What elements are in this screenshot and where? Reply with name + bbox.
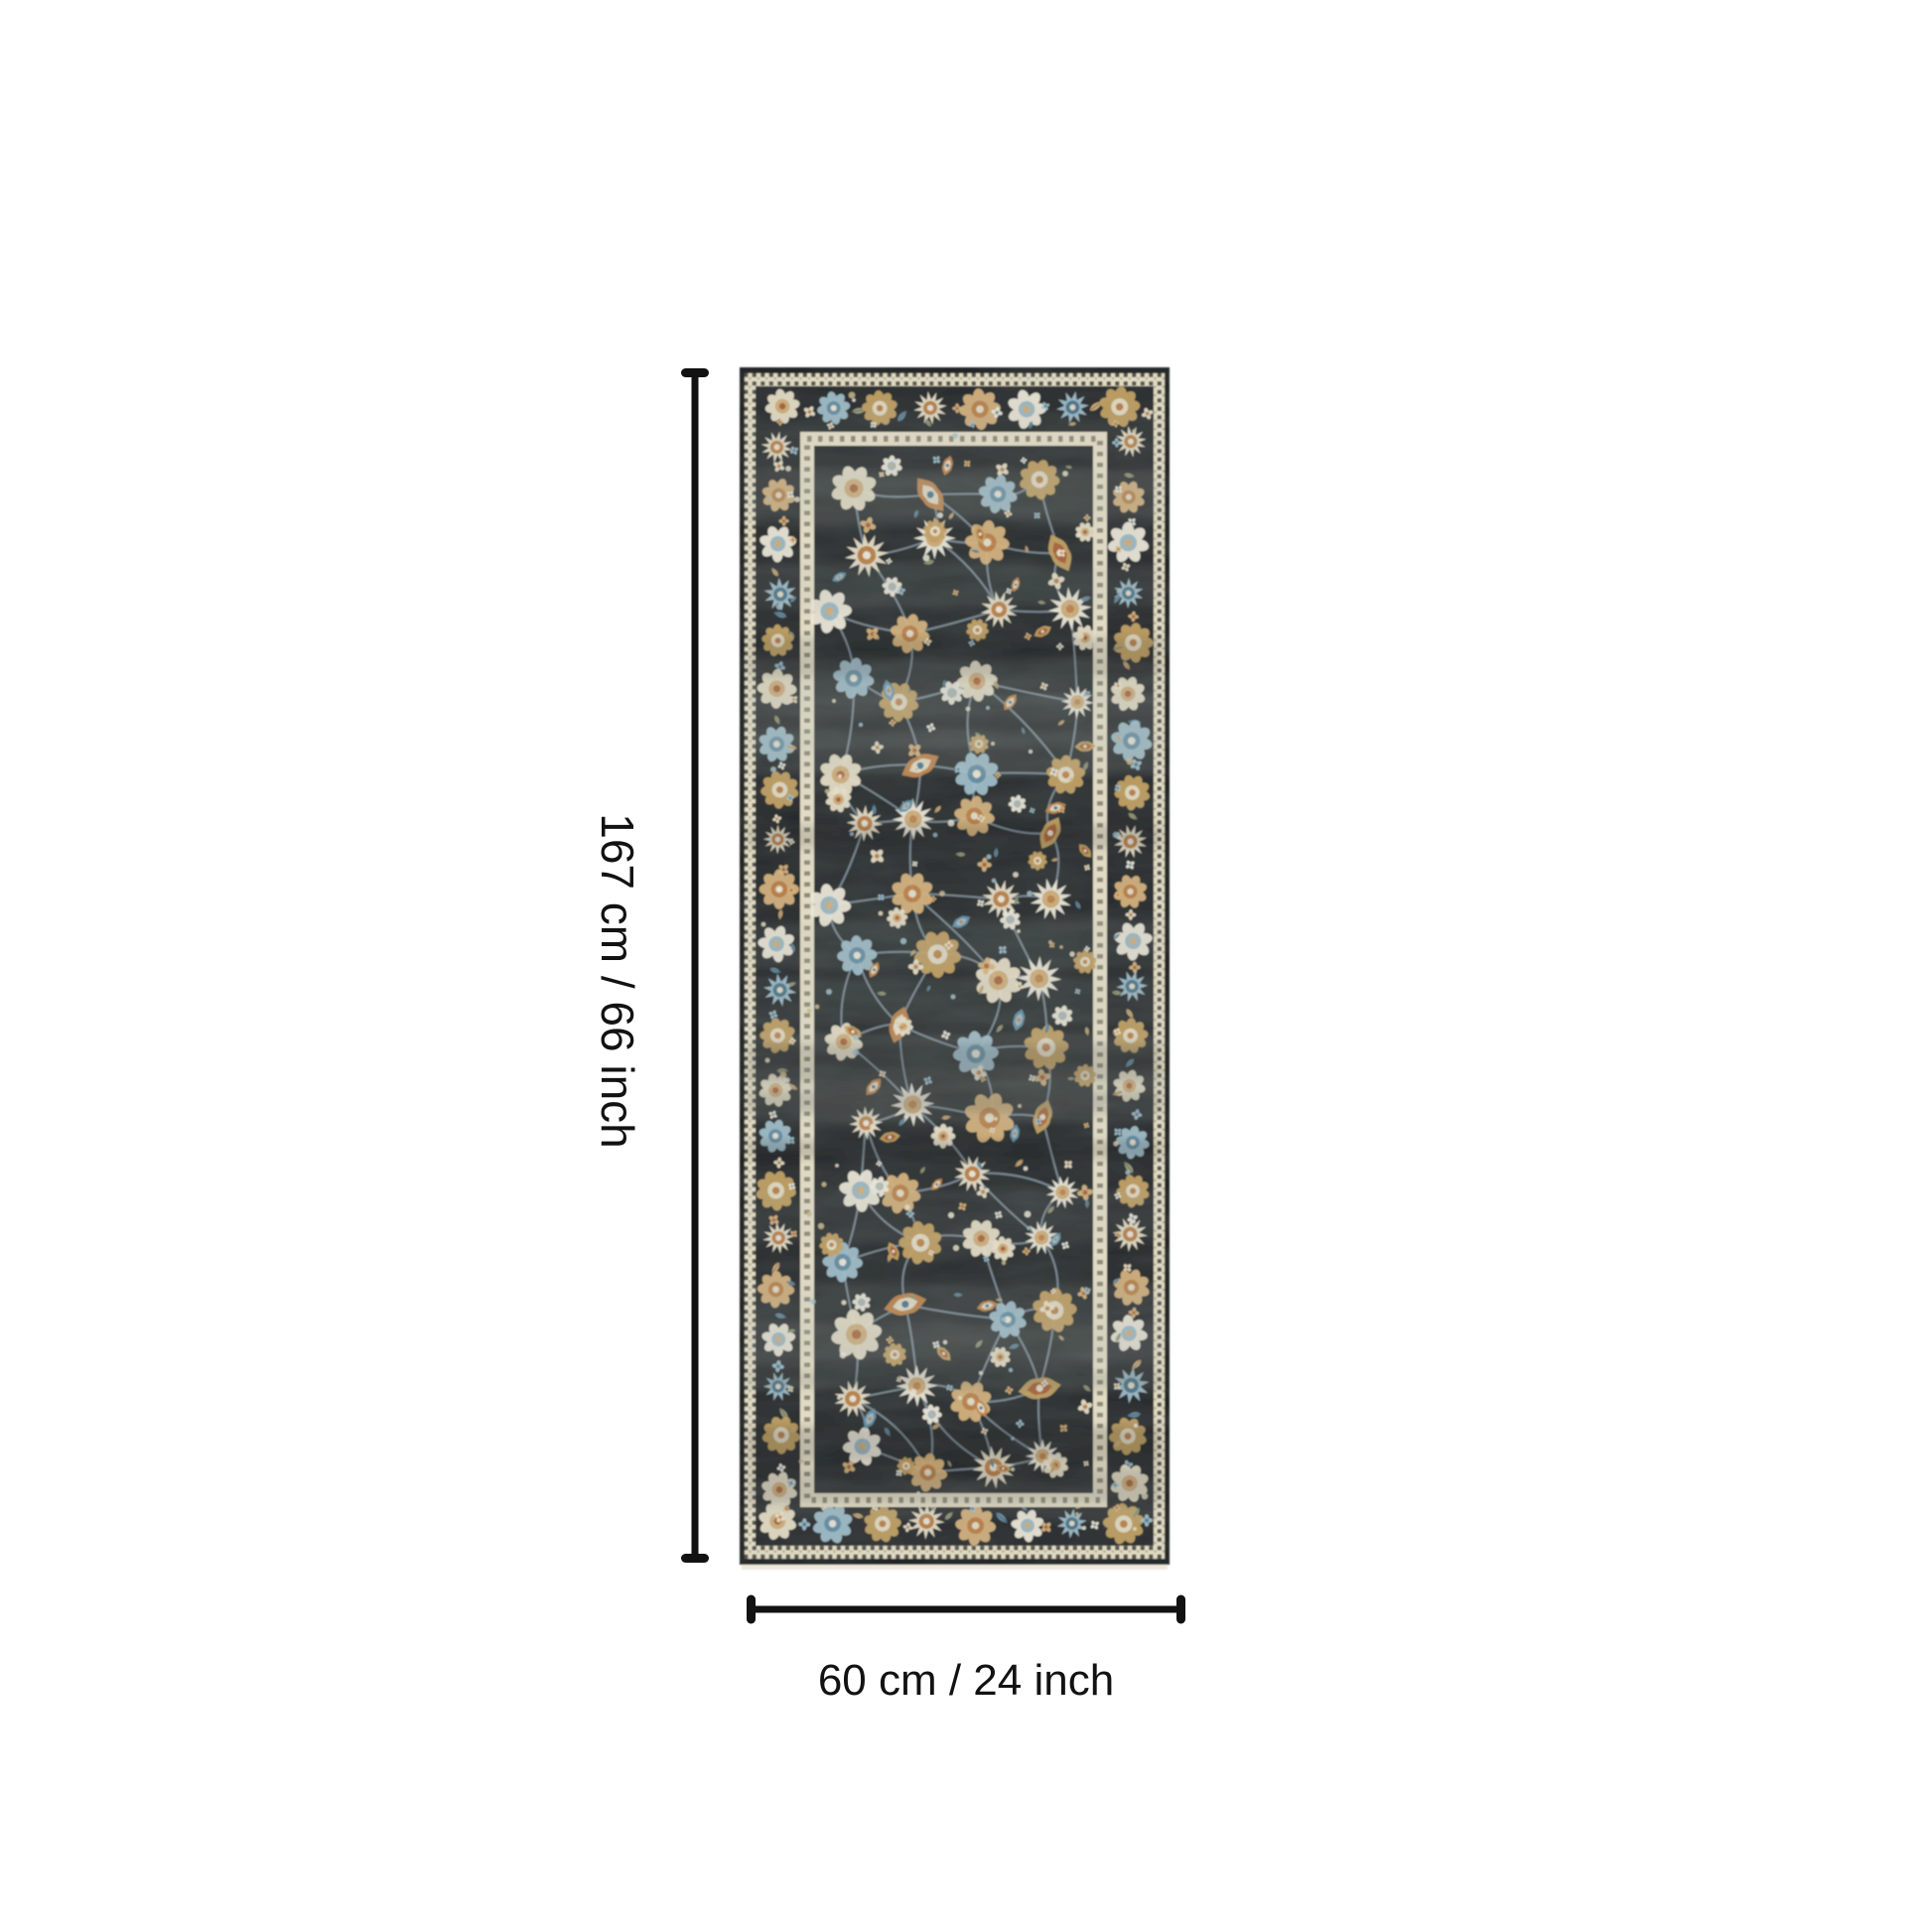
svg-text:167 cm / 66 inch: 167 cm / 66 inch — [592, 813, 643, 1149]
svg-text:60 cm / 24 inch: 60 cm / 24 inch — [818, 1656, 1114, 1705]
